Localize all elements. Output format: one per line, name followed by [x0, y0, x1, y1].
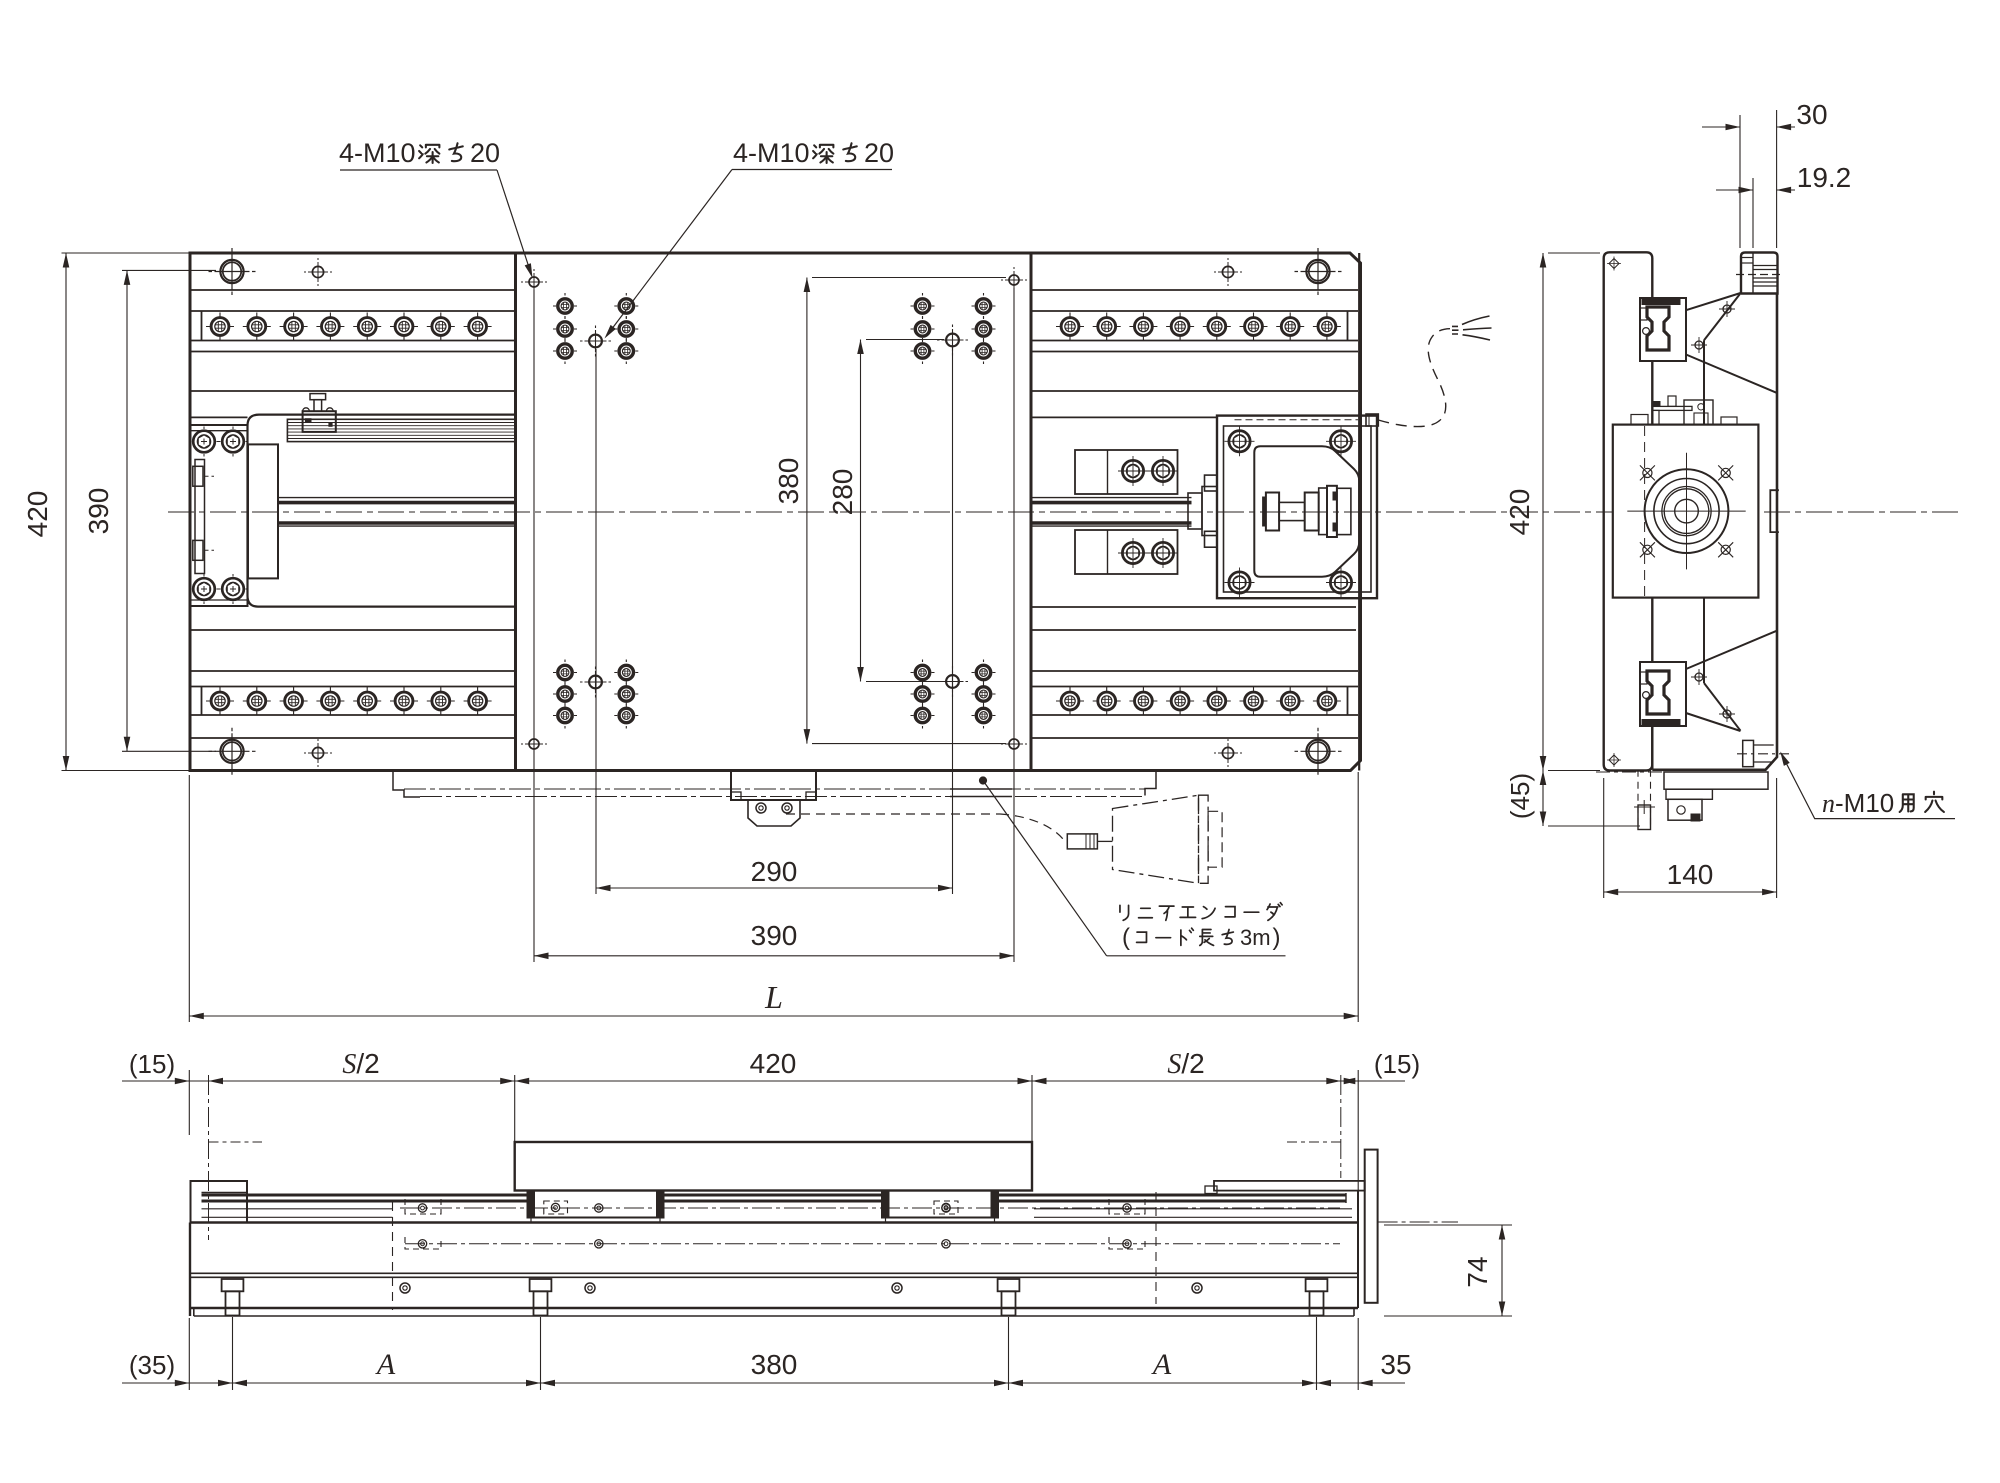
svg-text:20: 20 — [470, 138, 500, 168]
svg-text:420: 420 — [750, 1048, 797, 1079]
svg-text:280: 280 — [827, 469, 858, 516]
svg-text:290: 290 — [751, 856, 798, 887]
svg-text:74: 74 — [1462, 1256, 1493, 1287]
svg-text:): ) — [1273, 924, 1281, 951]
svg-text:S/2: S/2 — [1167, 1048, 1204, 1080]
svg-text:(35): (35) — [129, 1350, 175, 1380]
svg-text:390: 390 — [83, 488, 114, 535]
svg-text:420: 420 — [22, 491, 53, 538]
svg-text:4-M10: 4-M10 — [733, 138, 810, 168]
svg-text:(: ( — [1122, 924, 1130, 951]
svg-text:(15): (15) — [129, 1049, 175, 1079]
svg-text:20: 20 — [864, 138, 894, 168]
svg-text:L: L — [764, 979, 783, 1015]
svg-text:30: 30 — [1796, 99, 1827, 130]
svg-text:4-M10: 4-M10 — [339, 138, 416, 168]
svg-text:A: A — [375, 1348, 396, 1381]
svg-text:S/2: S/2 — [342, 1048, 379, 1080]
svg-text:3m: 3m — [1240, 925, 1271, 950]
svg-text:380: 380 — [751, 1349, 798, 1380]
svg-text:n-M10: n-M10 — [1822, 788, 1894, 818]
svg-text:(45): (45) — [1505, 773, 1535, 819]
svg-text:140: 140 — [1667, 859, 1714, 890]
svg-text:35: 35 — [1380, 1349, 1411, 1380]
svg-text:A: A — [1151, 1348, 1172, 1381]
svg-text:19.2: 19.2 — [1797, 162, 1852, 193]
svg-text:380: 380 — [773, 458, 804, 505]
svg-text:420: 420 — [1504, 489, 1535, 536]
svg-text:(15): (15) — [1374, 1049, 1420, 1079]
svg-text:390: 390 — [751, 920, 798, 951]
